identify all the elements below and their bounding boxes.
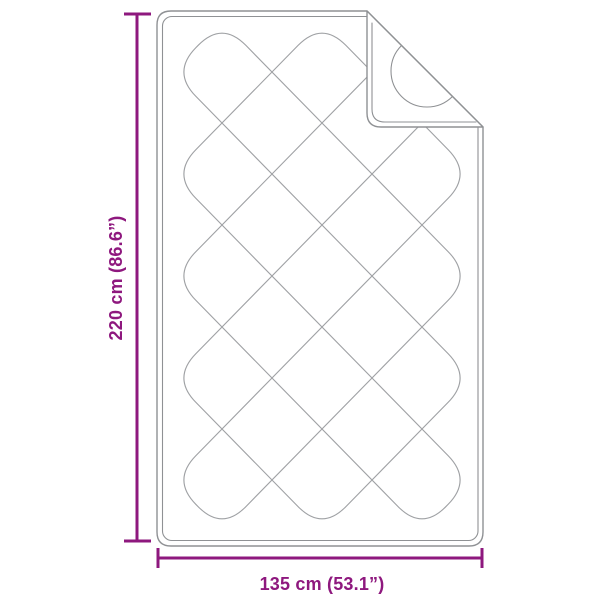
fold-flap (367, 11, 483, 127)
diagram-canvas: 220 cm (86.6”) 135 cm (53.1”) (0, 0, 600, 600)
product-dimension-diagram: 220 cm (86.6”) 135 cm (53.1”) (0, 0, 600, 600)
quilt-outline-group (157, 11, 483, 546)
width-dimension-label: 135 cm (53.1”) (260, 574, 385, 594)
height-dimension-label: 220 cm (86.6”) (106, 216, 126, 341)
